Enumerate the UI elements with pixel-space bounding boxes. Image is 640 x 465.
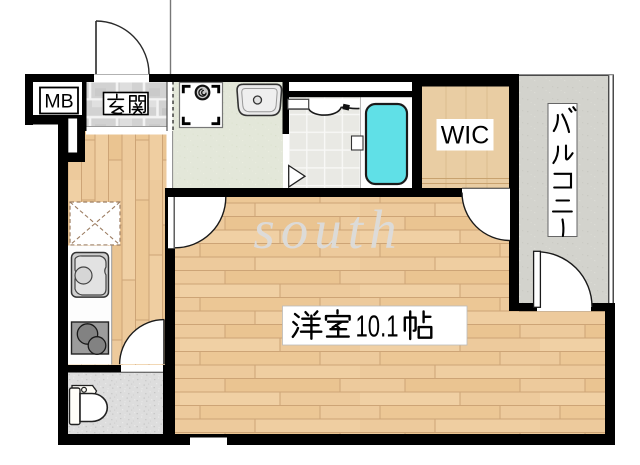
svg-text:MB: MB (44, 91, 73, 113)
svg-text:10.1: 10.1 (356, 309, 399, 344)
svg-text:south: south (253, 199, 402, 260)
svg-text:WIC: WIC (441, 122, 490, 150)
